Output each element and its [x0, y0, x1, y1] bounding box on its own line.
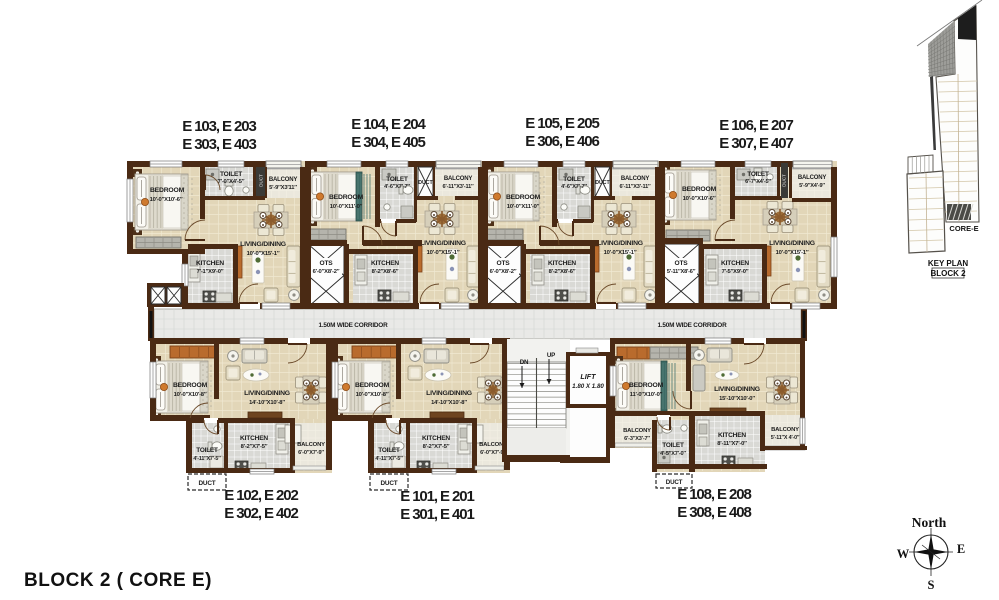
svg-text:8′-2″X7′-5″: 8′-2″X7′-5″: [423, 444, 450, 450]
svg-text:DUCT: DUCT: [381, 480, 398, 487]
svg-text:LIVING/DINING: LIVING/DINING: [420, 240, 466, 247]
svg-text:TOILET: TOILET: [563, 176, 585, 183]
svg-text:E 307, E 407: E 307, E 407: [719, 135, 793, 152]
svg-text:E 102, E 202: E 102, E 202: [224, 487, 298, 504]
svg-text:E 308, E 408: E 308, E 408: [677, 504, 751, 521]
svg-text:BALCONY: BALCONY: [621, 176, 649, 182]
svg-text:E 108, E 208: E 108, E 208: [677, 486, 751, 503]
svg-text:BALCONY: BALCONY: [297, 442, 325, 448]
svg-text:LIVING/DINING: LIVING/DINING: [244, 390, 290, 397]
svg-text:6′-11″X3′-11″: 6′-11″X3′-11″: [620, 184, 651, 190]
svg-text:4′-6″X7′-7″: 4′-6″X7′-7″: [384, 184, 410, 190]
svg-text:5′-9″X3′11″: 5′-9″X3′11″: [269, 185, 297, 191]
svg-text:BEDROOM: BEDROOM: [355, 382, 390, 389]
svg-text:DUCT: DUCT: [259, 174, 264, 187]
svg-text:DUCT: DUCT: [418, 180, 433, 186]
svg-text:BALCONY: BALCONY: [798, 175, 826, 181]
svg-text:KITCHEN: KITCHEN: [721, 260, 749, 267]
svg-text:KITCHEN: KITCHEN: [371, 260, 399, 267]
svg-text:6′-3″X3′-7″: 6′-3″X3′-7″: [624, 436, 650, 442]
svg-text:LIVING/DINING: LIVING/DINING: [426, 390, 472, 397]
svg-text:BEDROOM: BEDROOM: [682, 186, 717, 193]
svg-text:E 302, E 402: E 302, E 402: [224, 505, 298, 522]
svg-text:6′-0″X7′-9″: 6′-0″X7′-9″: [298, 450, 324, 456]
svg-text:7′-0″X4′-5″: 7′-0″X4′-5″: [218, 179, 245, 185]
svg-text:10′-0″X15′-1″: 10′-0″X15′-1″: [427, 250, 460, 256]
svg-text:E: E: [957, 542, 965, 556]
svg-text:E 301, E 401: E 301, E 401: [400, 506, 474, 523]
svg-text:UP: UP: [547, 352, 555, 359]
svg-text:TOILET: TOILET: [747, 171, 769, 178]
svg-text:OTS: OTS: [320, 260, 334, 267]
svg-text:KEY PLAN: KEY PLAN: [928, 259, 969, 268]
svg-text:LIVING/DINING: LIVING/DINING: [714, 386, 760, 393]
svg-text:TOILET: TOILET: [662, 442, 684, 449]
svg-text:4′-6″X7′-7″: 4′-6″X7′-7″: [561, 184, 587, 190]
svg-text:E 105, E 205: E 105, E 205: [525, 115, 599, 132]
svg-text:E 104, E 204: E 104, E 204: [351, 116, 426, 133]
svg-text:TOILET: TOILET: [386, 176, 408, 183]
svg-text:8′-2″X7′-5″: 8′-2″X7′-5″: [241, 444, 268, 450]
svg-text:10′-0″X15′-1″: 10′-0″X15′-1″: [247, 251, 280, 257]
svg-text:S: S: [928, 578, 935, 592]
svg-text:BALCONY: BALCONY: [269, 177, 297, 183]
svg-text:10′-0″X10′-6″: 10′-0″X10′-6″: [150, 197, 183, 203]
svg-text:5′-11″X8′-6″: 5′-11″X8′-6″: [667, 269, 696, 275]
svg-text:DUCT: DUCT: [666, 479, 683, 486]
svg-text:1.80 X 1.80: 1.80 X 1.80: [572, 383, 604, 390]
svg-text:8′-11″X7′-0″: 8′-11″X7′-0″: [717, 441, 747, 447]
svg-text:BEDROOM: BEDROOM: [506, 194, 541, 201]
svg-text:10′-0″X10′-8″: 10′-0″X10′-8″: [174, 392, 207, 398]
svg-text:BALCONY: BALCONY: [623, 428, 651, 434]
svg-text:BEDROOM: BEDROOM: [173, 382, 208, 389]
svg-text:10′-0″X15′-1″: 10′-0″X15′-1″: [604, 250, 637, 256]
svg-text:TOILET: TOILET: [220, 171, 242, 178]
svg-text:4′-11″X7′-5″: 4′-11″X7′-5″: [375, 456, 403, 462]
svg-text:BEDROOM: BEDROOM: [329, 194, 364, 201]
svg-text:10′-0″X10′-6″: 10′-0″X10′-6″: [683, 196, 716, 202]
svg-text:4′-5″X7′-0″: 4′-5″X7′-0″: [660, 451, 686, 457]
svg-text:OTS: OTS: [675, 260, 689, 267]
svg-text:LIVING/DINING: LIVING/DINING: [597, 240, 643, 247]
svg-text:BALCONY: BALCONY: [444, 176, 472, 182]
svg-text:8′-2″X8′-6″: 8′-2″X8′-6″: [549, 269, 576, 275]
svg-text:6′-11″X3′-11″: 6′-11″X3′-11″: [443, 184, 474, 190]
svg-text:KITCHEN: KITCHEN: [196, 260, 224, 267]
svg-text:5′-9″X4′-9″: 5′-9″X4′-9″: [799, 183, 825, 189]
svg-text:BLOCK 2: BLOCK 2: [930, 269, 966, 278]
svg-text:CORE-E: CORE-E: [949, 224, 978, 233]
svg-text:North: North: [912, 515, 947, 530]
svg-text:10′-0″X15′-1″: 10′-0″X15′-1″: [776, 250, 809, 256]
svg-text:LIVING/DINING: LIVING/DINING: [769, 240, 815, 247]
svg-text:BALCONY: BALCONY: [771, 427, 799, 433]
svg-text:4′-11″X7′-5″: 4′-11″X7′-5″: [193, 456, 221, 462]
svg-text:W: W: [897, 547, 910, 561]
svg-text:KITCHEN: KITCHEN: [718, 432, 746, 439]
svg-text:1.50M WIDE CORRIDOR: 1.50M WIDE CORRIDOR: [658, 322, 728, 329]
svg-text:10′-0″X11′-0″: 10′-0″X11′-0″: [507, 204, 540, 210]
svg-text:10′-0″X10′-8″: 10′-0″X10′-8″: [356, 392, 389, 398]
svg-text:7′-1″X9′-0″: 7′-1″X9′-0″: [197, 269, 224, 275]
svg-text:DN: DN: [520, 359, 529, 366]
svg-text:10′-0″X11′-0″: 10′-0″X11′-0″: [330, 204, 363, 210]
svg-text:KITCHEN: KITCHEN: [548, 260, 576, 267]
svg-text:6′-7″X4′-5″: 6′-7″X4′-5″: [745, 179, 771, 185]
svg-text:7′-5″X9′-0″: 7′-5″X9′-0″: [722, 269, 749, 275]
svg-text:DUCT: DUCT: [595, 180, 610, 186]
svg-text:DUCT: DUCT: [199, 480, 216, 487]
svg-text:1.50M WIDE CORRIDOR: 1.50M WIDE CORRIDOR: [319, 322, 389, 329]
svg-text:BEDROOM: BEDROOM: [629, 382, 664, 389]
svg-text:E 106, E 207: E 106, E 207: [719, 117, 793, 134]
svg-text:KITCHEN: KITCHEN: [422, 435, 450, 442]
svg-text:E 306, E 406: E 306, E 406: [525, 133, 599, 150]
svg-text:LIFT: LIFT: [580, 372, 596, 381]
svg-text:8′-2″X8′-6″: 8′-2″X8′-6″: [372, 269, 399, 275]
svg-text:KITCHEN: KITCHEN: [240, 435, 268, 442]
svg-text:BEDROOM: BEDROOM: [150, 187, 185, 194]
svg-text:E 303, E 403: E 303, E 403: [182, 136, 256, 153]
svg-text:OTS: OTS: [497, 260, 511, 267]
svg-text:15′-10″X10′-0″: 15′-10″X10′-0″: [719, 396, 755, 402]
svg-text:TOILET: TOILET: [378, 447, 400, 454]
svg-text:11′-0″X10′-0″: 11′-0″X10′-0″: [630, 392, 663, 398]
svg-text:5′-11″X 4′-0″: 5′-11″X 4′-0″: [771, 435, 800, 441]
svg-text:14′-10″X10′-8″: 14′-10″X10′-8″: [431, 400, 467, 406]
svg-text:E 304, E 405: E 304, E 405: [351, 134, 425, 151]
svg-text:E 103, E 203: E 103, E 203: [182, 118, 256, 135]
svg-text:E 101, E 201: E 101, E 201: [400, 488, 474, 505]
svg-text:6′-0″X8′-2″: 6′-0″X8′-2″: [490, 269, 517, 275]
svg-text:6′-0″X8′-2″: 6′-0″X8′-2″: [313, 269, 340, 275]
svg-text:14′-10″X10′-8″: 14′-10″X10′-8″: [249, 400, 285, 406]
svg-text:LIVING/DINING: LIVING/DINING: [240, 241, 286, 248]
svg-text:TOILET: TOILET: [196, 447, 218, 454]
svg-text:BLOCK 2 ( CORE E): BLOCK 2 ( CORE E): [24, 570, 212, 591]
svg-text:DUCT: DUCT: [782, 174, 787, 187]
